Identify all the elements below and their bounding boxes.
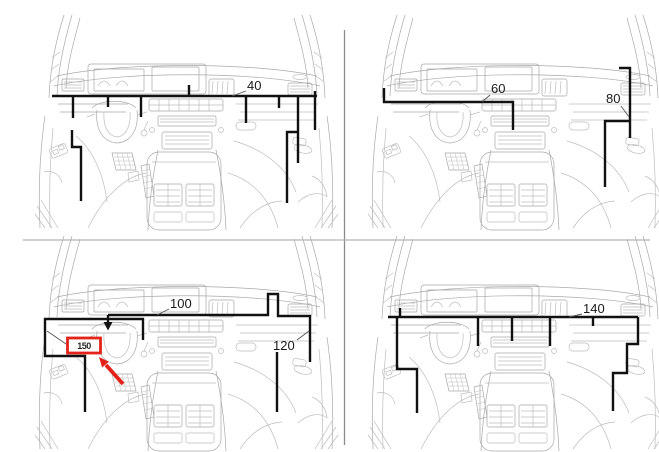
highlight-badge-label: 150 bbox=[77, 341, 91, 351]
callout-label-40: 40 bbox=[247, 78, 261, 93]
red-arrow-icon bbox=[99, 357, 123, 384]
callout-label-80: 80 bbox=[606, 91, 620, 106]
panel-top-left: 40 bbox=[52, 78, 317, 203]
diagram-stage: 40 60 80 100 120 150 bbox=[0, 0, 659, 452]
callout-label-120: 120 bbox=[273, 338, 295, 353]
dashboard-illustration-bottom-right bbox=[368, 236, 659, 451]
callout-label-140: 140 bbox=[583, 301, 605, 316]
highlight-badge: 150 bbox=[68, 338, 101, 353]
dashboard-diagram-canvas: 40 60 80 100 120 150 bbox=[0, 0, 659, 452]
callout-label-60: 60 bbox=[491, 81, 505, 96]
down-arrow-icon bbox=[104, 315, 113, 331]
callout-leader-80 bbox=[621, 106, 629, 117]
callout-leader-120 bbox=[297, 331, 309, 340]
harness-highlight-lines-140 bbox=[388, 308, 638, 413]
callout-label-100: 100 bbox=[170, 296, 192, 311]
